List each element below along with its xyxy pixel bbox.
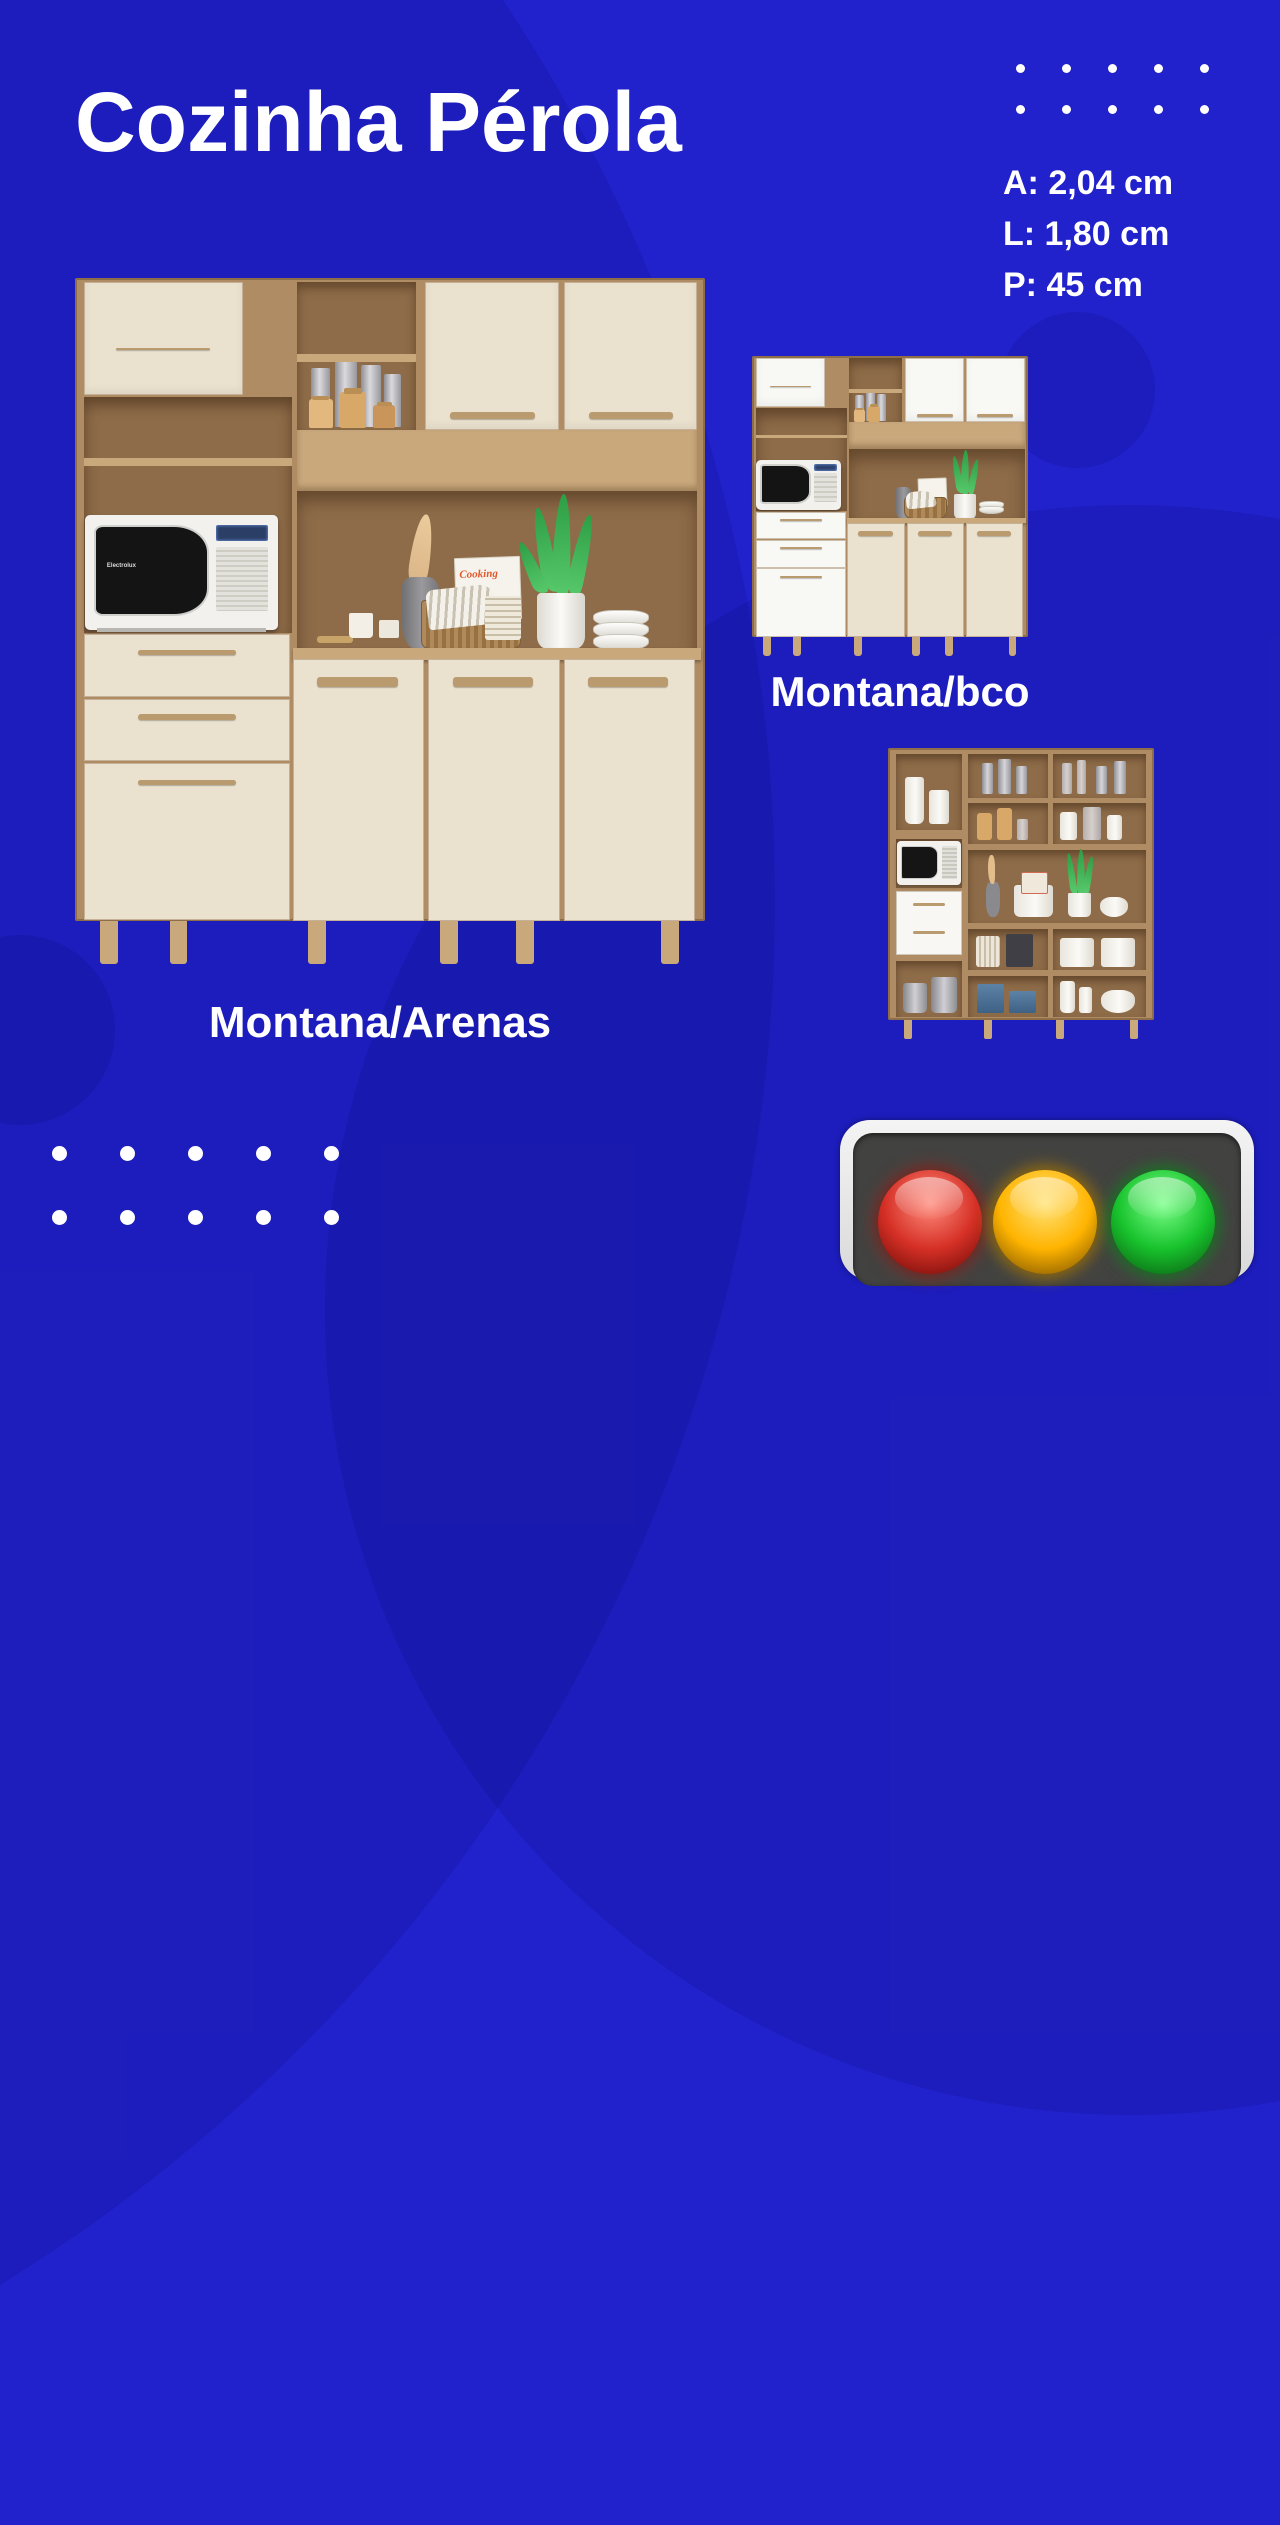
white-canister [1079, 987, 1092, 1013]
door-handle [977, 414, 1013, 417]
jar [868, 406, 880, 421]
door-handle [977, 531, 1011, 536]
white-canister [905, 777, 924, 824]
dot [188, 1210, 203, 1225]
jar [1060, 812, 1077, 841]
microwave: Electrolux [85, 515, 278, 630]
cabinet-leg [912, 637, 920, 656]
door-handle [780, 576, 822, 579]
cabinet-leg [945, 637, 953, 656]
dot [120, 1210, 135, 1225]
drawer [84, 699, 291, 762]
canister [1016, 766, 1027, 794]
cookbook-title: Cooking [459, 567, 498, 580]
basket [976, 936, 1000, 966]
product-photo-montana-open [888, 748, 1154, 1040]
open-niche [896, 961, 963, 1016]
dot [188, 1146, 203, 1161]
dimensions-block: A: 2,04 cm L: 1,80 cm P: 45 cm [1003, 158, 1173, 311]
door-handle [138, 780, 236, 786]
cabinet-leg [100, 921, 118, 964]
microwave-door [901, 846, 938, 879]
cabinet-leg [1056, 1020, 1064, 1039]
drawer [756, 512, 847, 540]
bottom-doors [847, 523, 1025, 638]
door-handle [589, 412, 673, 418]
door-handle [858, 531, 892, 536]
cabinet-leg [854, 637, 862, 656]
dot [1108, 64, 1117, 73]
bowl-stack [979, 501, 1004, 518]
wine-glass [1077, 760, 1086, 794]
dot [1016, 64, 1025, 73]
drawer-column [84, 634, 291, 920]
open-niche [1053, 929, 1146, 970]
cabinet-leg [763, 637, 771, 656]
jar [977, 813, 991, 840]
microwave-door [760, 464, 811, 504]
microwave-panel [942, 846, 957, 879]
glass-jar [1083, 807, 1102, 841]
open-shelf-column [297, 282, 417, 430]
open-niche [968, 803, 1048, 844]
dot [256, 1210, 271, 1225]
jar [997, 808, 1013, 840]
door-handle [116, 348, 210, 350]
microwave-keypad [216, 547, 268, 611]
canister [1096, 766, 1107, 794]
drawer [84, 634, 291, 697]
microwave [897, 841, 961, 885]
plant-leaf [1065, 853, 1078, 896]
upper-right-door-1 [905, 358, 964, 423]
cabinet-leg [661, 921, 679, 964]
dimension-width: L: 1,80 cm [1003, 209, 1173, 260]
dot [1154, 64, 1163, 73]
honey-dipper [317, 636, 353, 643]
traffic-light [840, 1120, 1254, 1280]
jar [854, 409, 864, 421]
bottom-door-1 [847, 523, 905, 638]
storage-box [1009, 991, 1036, 1013]
cabinet-leg [516, 921, 534, 964]
dimension-height: A: 2,04 cm [1003, 158, 1173, 209]
microwave-display [814, 464, 837, 471]
cup [379, 620, 399, 638]
drawer-handle [138, 650, 236, 655]
cookbook [1021, 872, 1048, 894]
cabinet-leg [793, 637, 801, 656]
bottom-door-2 [428, 659, 559, 921]
upper-right-door-2 [564, 282, 698, 430]
shelf-board [297, 354, 417, 361]
drawer-handle [780, 519, 822, 521]
canister [1114, 761, 1125, 794]
cooking-pot [903, 983, 927, 1013]
bowl-stack [1101, 990, 1135, 1013]
counter-niche [849, 449, 1025, 521]
open-niche [968, 850, 1146, 923]
jar [373, 405, 395, 428]
dot [1108, 105, 1117, 114]
microwave-panel [216, 525, 268, 617]
door-handle [453, 677, 533, 687]
dot [1062, 105, 1071, 114]
door-handle [450, 412, 535, 418]
lower-left-door [84, 763, 291, 920]
plaid-cloth [485, 596, 521, 639]
white-canister [1060, 981, 1075, 1014]
traffic-light-red [878, 1170, 982, 1274]
wood-valance [849, 422, 1025, 449]
dot [52, 1146, 67, 1161]
microwave-feet [97, 628, 267, 633]
vase [986, 882, 1000, 917]
drawer-handle [913, 903, 945, 906]
plant-pot [954, 494, 975, 519]
open-niche [1053, 976, 1146, 1017]
open-shelf-column [849, 358, 901, 423]
lower-left-door [756, 568, 847, 637]
cabinet-leg [170, 921, 188, 964]
dot-grid-top [1016, 64, 1209, 114]
product-photo-montana-arenas: Cooking Electrolux [75, 278, 705, 968]
cabinet-leg [308, 921, 326, 964]
cabinet-leg [904, 1020, 912, 1039]
cooking-pot [931, 977, 958, 1014]
dot [324, 1210, 339, 1225]
drawer-handle [138, 714, 236, 719]
canister [998, 759, 1011, 794]
cabinet-leg [984, 1020, 992, 1039]
dot [1154, 105, 1163, 114]
open-niche [968, 754, 1048, 798]
traffic-light-green [1111, 1170, 1215, 1274]
door-handle [918, 531, 952, 536]
plant-pot [537, 593, 585, 649]
white-bowl [929, 790, 949, 823]
canister [982, 763, 993, 794]
door-handle [317, 677, 397, 687]
cabinet-leg [1130, 1020, 1138, 1039]
jar [309, 399, 333, 428]
bottom-door-3 [966, 523, 1023, 638]
plant-leaf [1082, 856, 1096, 896]
books [1006, 934, 1033, 967]
drawer-handle [913, 931, 945, 934]
glass-jar [1017, 819, 1028, 840]
bottom-doors [293, 659, 699, 921]
open-niche [1053, 754, 1146, 798]
microwave-keypad [814, 473, 837, 501]
drawer-handle [780, 547, 822, 549]
shelf-board [84, 458, 292, 466]
feather-decor [988, 855, 995, 884]
microwave-brand: Electrolux [107, 563, 163, 569]
white-drawers [896, 891, 963, 955]
open-niche [968, 929, 1048, 970]
door-handle [770, 386, 811, 387]
white-basket [1060, 938, 1094, 967]
cabinet-leg [440, 921, 458, 964]
product-photo-montana-bco [752, 356, 1028, 658]
page-title: Cozinha Pérola [75, 78, 895, 166]
drawer-column [756, 512, 847, 637]
open-niche [896, 754, 963, 830]
counter-niche: Cooking [297, 491, 698, 657]
shelf-board [756, 435, 847, 439]
cup [349, 613, 373, 638]
dot [324, 1146, 339, 1161]
plant-pot [1068, 893, 1091, 918]
dot [1200, 64, 1209, 73]
white-basket [1101, 938, 1135, 967]
bowl-stack [593, 610, 649, 650]
dot [52, 1210, 67, 1225]
jar [1107, 815, 1122, 840]
bottom-door-2 [907, 523, 965, 638]
upper-right-door-1 [425, 282, 559, 430]
drawer [756, 540, 847, 568]
dot [1016, 105, 1025, 114]
dot [256, 1146, 271, 1161]
dot [1062, 64, 1071, 73]
microwave-display [216, 525, 268, 541]
product-label-arenas: Montana/Arenas [120, 998, 640, 1048]
upper-left-door [756, 358, 826, 408]
bottom-door-1 [293, 659, 424, 921]
microwave [756, 460, 840, 510]
upper-right-door-2 [966, 358, 1025, 423]
product-label-bco: Montana/bco [720, 668, 1080, 716]
microwave-panel [814, 464, 837, 504]
wood-valance [297, 430, 698, 491]
bowl [1100, 897, 1129, 917]
dimension-depth: P: 45 cm [1003, 260, 1173, 311]
traffic-light-yellow [993, 1170, 1097, 1274]
upper-left-door [84, 282, 243, 395]
door-handle [917, 414, 953, 417]
door-handle [588, 677, 668, 687]
storage-box [977, 984, 1004, 1013]
dot [1200, 105, 1209, 114]
cabinet-leg [1009, 637, 1017, 656]
open-niche [968, 976, 1048, 1017]
ad-page: { "title": "Cozinha Pérola", "specs": ["… [0, 0, 1280, 1280]
jar [340, 392, 366, 427]
wine-glass [1062, 763, 1071, 795]
dot-grid-bottom [52, 1146, 339, 1225]
open-niche [1053, 803, 1146, 844]
microwave-door: Electrolux [94, 525, 210, 617]
bottom-door-3 [564, 659, 695, 921]
dot [120, 1146, 135, 1161]
